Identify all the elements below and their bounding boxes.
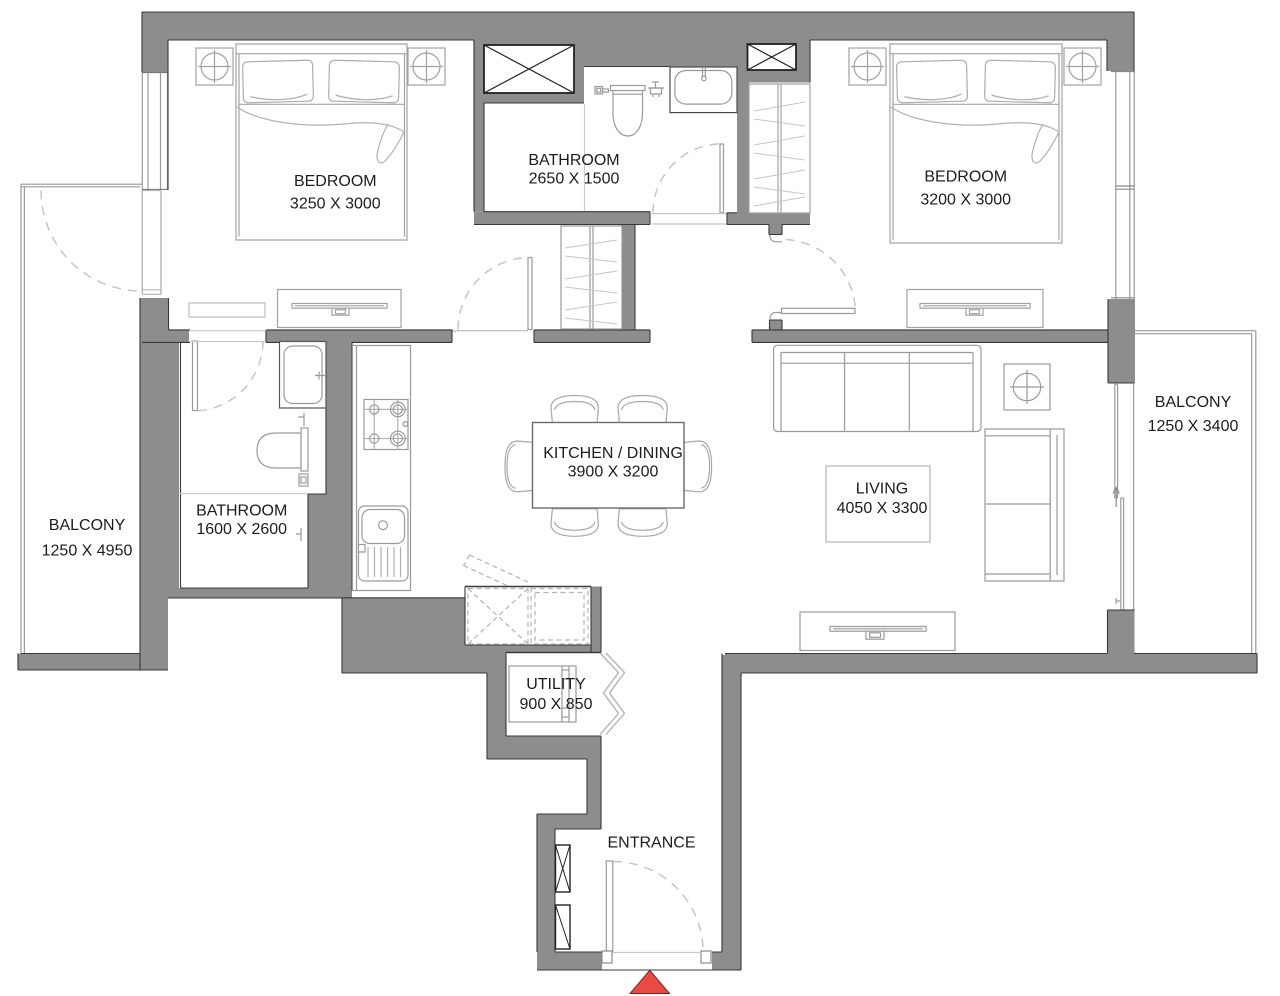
svg-text:BATHROOM: BATHROOM bbox=[196, 503, 287, 520]
svg-text:4050 X 3300: 4050 X 3300 bbox=[837, 500, 928, 517]
svg-text:2650 X 1500: 2650 X 1500 bbox=[529, 171, 620, 188]
svg-text:1250 X 4950: 1250 X 4950 bbox=[42, 543, 133, 560]
svg-text:1250 X 3400: 1250 X 3400 bbox=[1148, 418, 1239, 435]
svg-text:3200 X 3000: 3200 X 3000 bbox=[920, 192, 1011, 209]
svg-text:LIVING: LIVING bbox=[856, 481, 908, 498]
svg-text:BALCONY: BALCONY bbox=[1155, 394, 1232, 411]
svg-text:BEDROOM: BEDROOM bbox=[924, 169, 1007, 186]
svg-text:BATHROOM: BATHROOM bbox=[528, 152, 619, 169]
svg-text:BEDROOM: BEDROOM bbox=[294, 173, 377, 190]
svg-text:KITCHEN / DINING: KITCHEN / DINING bbox=[543, 445, 683, 462]
svg-text:3900 X 3200: 3900 X 3200 bbox=[568, 464, 659, 481]
svg-text:3250 X 3000: 3250 X 3000 bbox=[290, 196, 381, 213]
svg-text:900 X 850: 900 X 850 bbox=[520, 696, 593, 713]
svg-text:UTILITY: UTILITY bbox=[526, 676, 586, 693]
svg-text:ENTRANCE: ENTRANCE bbox=[607, 835, 695, 852]
svg-text:1600 X 2600: 1600 X 2600 bbox=[196, 521, 287, 538]
svg-text:BALCONY: BALCONY bbox=[49, 517, 126, 534]
